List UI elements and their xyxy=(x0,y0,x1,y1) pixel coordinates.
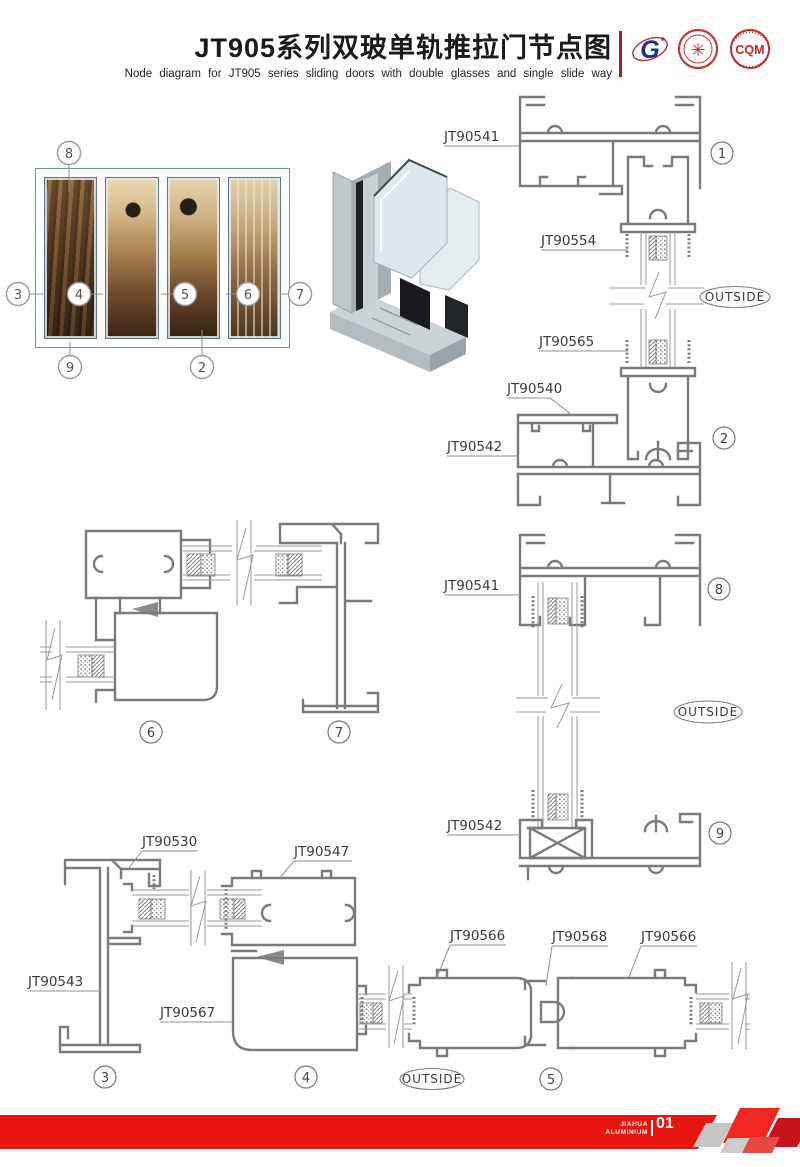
svg-text:OUTSIDE: OUTSIDE xyxy=(705,290,766,304)
node-badge-5: 5 xyxy=(540,1068,562,1090)
drawing-node-6-7: 6 7 xyxy=(40,520,378,743)
svg-text:4: 4 xyxy=(75,288,83,303)
diagram-canvas: 8 3 4 5 6 7 9 2 xyxy=(0,0,800,1167)
svg-text:3: 3 xyxy=(14,288,22,303)
glazing-seal xyxy=(360,1003,373,1023)
break-symbol xyxy=(46,620,62,710)
footer-graphics xyxy=(0,1108,800,1153)
svg-text:7: 7 xyxy=(296,288,304,303)
glazing-seal xyxy=(139,899,151,919)
glazing-seal xyxy=(187,554,201,576)
glazing-seal xyxy=(548,794,556,820)
svg-text:7: 7 xyxy=(335,726,343,741)
node-badge-2: 2 xyxy=(713,427,735,449)
drawing-node-1-2: JT90541 JT90554 JT90565 JT90540 JT90542 … xyxy=(443,97,770,505)
glazing-seal xyxy=(78,655,92,677)
svg-text:4: 4 xyxy=(302,1071,310,1086)
callout-8: 8 xyxy=(58,142,81,165)
glazing-seal xyxy=(220,899,234,919)
drawing-node-3-4: JT90530 JT90547 JT90543 JT90567 3 4 xyxy=(27,834,412,1088)
break-symbol xyxy=(389,965,404,1048)
glazing-seal xyxy=(276,554,288,576)
svg-text:9: 9 xyxy=(716,827,724,842)
glazing-seal xyxy=(556,598,568,624)
part-label: JT90542 xyxy=(446,439,502,455)
glazing-seal xyxy=(656,340,667,364)
drawing-node-8-9: JT90541 JT90542 8 9 OUTSIDE xyxy=(443,535,742,879)
part-label: JT90540 xyxy=(506,381,562,397)
glazing-seal xyxy=(288,554,302,576)
setting-block xyxy=(530,828,585,858)
callout-5: 5 xyxy=(174,283,197,306)
part-label: JT90566 xyxy=(449,928,505,944)
part-label: JT90566 xyxy=(640,929,696,945)
glazing-seal xyxy=(151,899,165,919)
callout-9: 9 xyxy=(59,356,82,379)
break-symbol xyxy=(609,272,704,319)
svg-text:1: 1 xyxy=(718,147,726,162)
part-label: JT90567 xyxy=(159,1005,215,1021)
svg-text:3: 3 xyxy=(101,1071,109,1086)
svg-text:8: 8 xyxy=(715,583,723,598)
footer-divider xyxy=(651,1120,653,1136)
outside-label: OUTSIDE xyxy=(400,1069,464,1090)
outside-label: OUTSIDE xyxy=(674,701,742,723)
svg-text:OUTSIDE: OUTSIDE xyxy=(678,705,739,719)
profile-3d-render xyxy=(330,160,479,372)
glazing-seal xyxy=(201,554,215,576)
break-symbol xyxy=(191,870,206,946)
part-label: JT90543 xyxy=(27,974,83,990)
glazing-seal xyxy=(700,1003,709,1023)
part-label: JT90541 xyxy=(443,129,499,145)
part-label: JT90547 xyxy=(293,844,349,860)
drawing-node-5: JT90566 JT90568 JT90566 5 OUTSIDE xyxy=(400,928,750,1090)
part-label: JT90530 xyxy=(141,834,197,850)
svg-text:9: 9 xyxy=(66,361,74,376)
break-symbol xyxy=(237,520,253,606)
svg-text:5: 5 xyxy=(181,288,189,303)
node-badge-7: 7 xyxy=(328,721,350,743)
node-badge-4: 4 xyxy=(295,1066,317,1088)
outside-label: OUTSIDE xyxy=(700,287,770,308)
svg-text:OUTSIDE: OUTSIDE xyxy=(402,1072,463,1086)
catalog-page: JT905系列双玻单轨推拉门节点图 Node diagram for JT905… xyxy=(0,0,800,1167)
glazing-seal xyxy=(373,1003,382,1023)
svg-text:6: 6 xyxy=(147,726,155,741)
glazing-seal xyxy=(649,340,656,364)
svg-text:2: 2 xyxy=(198,361,206,376)
callout-6: 6 xyxy=(237,283,260,306)
callout-2: 2 xyxy=(191,356,214,379)
part-label: JT90542 xyxy=(446,818,502,834)
node-badge-8: 8 xyxy=(708,578,730,600)
node-badge-1: 1 xyxy=(711,142,733,164)
break-symbol xyxy=(732,962,748,1050)
node-badge-3: 3 xyxy=(94,1066,116,1088)
part-label: JT90568 xyxy=(551,929,607,945)
callout-4: 4 xyxy=(68,283,91,306)
callout-3: 3 xyxy=(7,283,30,306)
callout-7: 7 xyxy=(289,283,312,306)
node-badge-9: 9 xyxy=(709,822,731,844)
glazing-seal xyxy=(709,1003,722,1023)
part-label: JT90565 xyxy=(538,334,594,350)
glazing-seal xyxy=(649,236,656,260)
svg-text:6: 6 xyxy=(244,288,252,303)
svg-text:5: 5 xyxy=(547,1073,555,1088)
glazing-seal xyxy=(92,655,104,677)
node-badge-6: 6 xyxy=(140,721,162,743)
footer-page-number: 01 xyxy=(656,1115,674,1133)
break-symbol xyxy=(516,684,600,728)
glazing-seal xyxy=(556,794,568,820)
footer-brand-line2: ALUMINIUM xyxy=(560,1129,648,1137)
part-label: JT90541 xyxy=(443,578,499,594)
photo-callouts: 8 3 4 5 6 7 9 2 xyxy=(7,142,312,379)
interlock-finger xyxy=(541,1002,564,1022)
interlock-wedge xyxy=(132,602,158,617)
part-label: JT90554 xyxy=(540,233,596,249)
glazing-seal xyxy=(234,899,245,919)
glazing-seal xyxy=(656,236,667,260)
svg-text:8: 8 xyxy=(65,147,73,162)
svg-text:2: 2 xyxy=(720,432,728,447)
glazing-seal xyxy=(548,598,556,624)
